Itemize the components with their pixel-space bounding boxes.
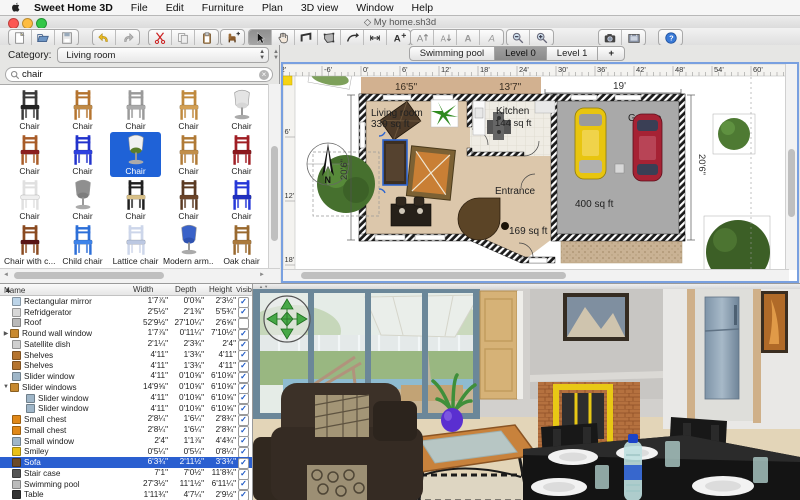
catalog-item-label: Oak chair — [216, 256, 267, 266]
svg-text:20'6": 20'6" — [339, 159, 350, 180]
furniture-depth: 11'1½" — [168, 479, 204, 490]
table-row-small-chest[interactable]: Small chest2'8¼"1'6¼"2'8¾"✓ — [0, 414, 252, 425]
svg-text:12': 12' — [441, 65, 451, 74]
category-label: Category: — [8, 50, 51, 61]
furniture-name: Slider windows — [22, 383, 77, 392]
furniture-width: 2'4" — [120, 436, 168, 447]
furniture-icon — [12, 458, 21, 467]
plan-hscrollbar[interactable] — [283, 269, 789, 281]
furniture-depth: 0'11¼" — [168, 328, 204, 339]
furniture-width: 4'11" — [120, 404, 168, 415]
catalog-item-chair[interactable]: Chair — [57, 177, 108, 222]
furniture-height: 6'10⅝" — [204, 393, 236, 404]
main-toolbar: AAAAA? — [0, 28, 800, 46]
table-row-small-chest[interactable]: Small chest2'8¼"1'6¼"2'8¾"✓ — [0, 425, 252, 436]
furniture-width: 27'3½" — [120, 479, 168, 490]
paste-icon — [200, 31, 214, 45]
add-text-icon: A — [392, 31, 406, 45]
catalog-item-label: Chair — [4, 211, 55, 221]
catalog-item-label: Chair — [163, 121, 214, 131]
column-name[interactable]: Name ▲ — [4, 285, 12, 294]
category-dropdown[interactable]: Living room ▲▼ — [57, 47, 269, 63]
new-document-button[interactable] — [9, 30, 32, 45]
furniture-width: 1'7⅞" — [120, 328, 168, 339]
table-header[interactable]: Name ▲ Width Depth Height Visible — [0, 284, 252, 296]
catalog-item-label: Chair — [110, 211, 161, 221]
table-row-satellite-dish[interactable]: Satellite dish2'1¼"2'3¾"2'4"✓ — [0, 339, 252, 350]
catalog-item-thumbnail — [4, 132, 55, 166]
catalog-item-chair[interactable]: Chair — [163, 87, 214, 132]
navigation-compass-icon[interactable] — [264, 296, 310, 342]
catalog-item-chair[interactable]: Chair — [57, 87, 108, 132]
catalog-item-child-chair[interactable]: Child chair — [57, 222, 108, 267]
italic-style-button[interactable]: A — [480, 30, 503, 45]
furniture-width: 4'11" — [120, 361, 168, 372]
room-garage-area: 400 sq ft — [575, 199, 614, 210]
furniture-depth: 1'1⅞" — [168, 436, 204, 447]
compass-north-label: N — [325, 175, 332, 185]
create-photo-button[interactable] — [599, 30, 622, 45]
furniture-name: Sofa — [24, 458, 41, 467]
catalog-item-thumbnail — [57, 132, 108, 166]
furniture-icon — [12, 415, 21, 424]
furniture-name: Slider window — [38, 404, 89, 413]
catalog-item-label: Chair — [163, 166, 214, 176]
catalog-hscrollbar[interactable]: ◄ ► — [0, 268, 280, 283]
menu-help[interactable]: Help — [403, 2, 443, 14]
catalog-item-label: Chair — [4, 121, 55, 131]
plan-view[interactable]: 16'5" 13'7" 19' — [281, 62, 799, 283]
column-width[interactable]: Width — [133, 285, 153, 294]
furniture-depth: 0'10⅝" — [168, 393, 204, 404]
furniture-name: Roof — [24, 318, 41, 327]
window-title-bar[interactable]: ◇ My home.sh3d — [0, 16, 800, 28]
create-dimensions-icon — [368, 31, 382, 45]
catalog-item-label: Child chair — [57, 256, 108, 266]
menu-sweet-home-3d[interactable]: Sweet Home 3D — [25, 2, 122, 14]
room-entrance-area: 169 sq ft — [509, 226, 548, 237]
furniture-icon — [10, 329, 19, 338]
table-row-smiley[interactable]: Smiley0'5¼"0'5¼"0'8¼"✓ — [0, 447, 252, 458]
catalog-item-chair[interactable]: Chair — [57, 132, 108, 177]
zoom-out-button[interactable] — [507, 30, 530, 45]
enlarge-text-button[interactable]: A — [411, 30, 434, 45]
table-row-slider-window[interactable]: Slider window4'11"0'10⅝"6'10⅝"✓ — [0, 371, 252, 382]
menu-3d-view[interactable]: 3D view — [292, 2, 347, 14]
copy-icon — [176, 31, 190, 45]
furniture-width: 1'11¾" — [120, 490, 168, 500]
plan-sofa-selected[interactable] — [379, 132, 407, 193]
furniture-name: Slider window — [24, 372, 75, 381]
create-video-icon — [627, 31, 641, 45]
furniture-icon — [12, 426, 21, 435]
catalog-item-chair-with-c[interactable]: Chair with c... — [4, 222, 55, 267]
svg-text:A: A — [441, 34, 447, 43]
add-furniture-icon — [226, 31, 240, 45]
svg-text:A: A — [487, 33, 494, 44]
catalog-item-chair[interactable]: Chair — [4, 177, 55, 222]
catalog-item-chair[interactable]: Chair — [216, 87, 267, 132]
svg-text:42': 42' — [636, 65, 646, 74]
furniture-height: 4'4¾" — [204, 436, 236, 447]
furniture-width: 2'1¼" — [120, 339, 168, 350]
catalog-item-thumbnail — [163, 87, 214, 121]
furniture-depth: 0'5¼" — [168, 447, 204, 458]
furniture-depth: 2'1⅜" — [168, 307, 204, 318]
furniture-width: 2'5½" — [120, 307, 168, 318]
bold-style-icon: A — [461, 31, 475, 45]
save-document-icon — [60, 31, 74, 45]
table-row-refridgerator[interactable]: Refridgerator2'5½"2'1⅜"5'5¾"✓ — [0, 307, 252, 318]
search-field[interactable]: × — [5, 67, 273, 82]
tab-level-0[interactable]: Level 0 — [494, 46, 547, 61]
furniture-width: 2'8¼" — [120, 425, 168, 436]
furniture-height: 2'6⅝" — [204, 318, 236, 329]
clear-search-icon[interactable]: × — [259, 70, 269, 80]
furniture-width: 52'9½" — [120, 318, 168, 329]
catalog-item-lattice-chair[interactable]: Lattice chair — [110, 222, 161, 267]
furniture-icon — [26, 394, 35, 403]
plan-vscrollbar[interactable] — [785, 64, 797, 270]
room-kitchen-area: 144 sq ft — [495, 118, 532, 129]
menu-bar: Sweet Home 3DFileEditFurniturePlan3D vie… — [0, 0, 800, 16]
furniture-icon — [12, 437, 21, 446]
catalog-item-chair[interactable]: Chair — [110, 87, 161, 132]
open-document-button[interactable] — [32, 30, 55, 45]
expand-right-icon[interactable]: ▶ — [2, 330, 10, 337]
apple-icon[interactable] — [10, 2, 21, 13]
furniture-depth: 0'10⅝" — [168, 404, 204, 415]
reduce-text-button[interactable]: A — [434, 30, 457, 45]
catalog-item-thumbnail — [163, 222, 214, 256]
zoom-out-icon — [511, 31, 525, 45]
catalog-item-thumbnail — [110, 177, 161, 211]
table-row-rectangular-mirror[interactable]: Rectangular mirror1'7⅞"0'0⅜"2'3½"✓ — [0, 296, 252, 307]
furniture-icon — [12, 361, 21, 370]
table-row-table[interactable]: Table1'11¾"4'7¼"2'9½"✓ — [0, 490, 252, 500]
svg-text:-12': -12' — [283, 65, 287, 74]
tab-level-1[interactable]: Level 1 — [546, 46, 599, 61]
table-row-round-wall-window[interactable]: ▶Round wall window1'7⅞"0'11¼"7'10½"✓ — [0, 328, 252, 339]
room-living-area: 339 sq ft — [371, 119, 410, 130]
catalog-item-chair[interactable]: Chair — [216, 132, 267, 177]
about-help-icon: ? — [664, 31, 678, 45]
table-row-small-window[interactable]: Small window2'4"1'1⅞"4'4¾"✓ — [0, 436, 252, 447]
catalog-item-thumbnail — [163, 177, 214, 211]
create-dimensions-button[interactable] — [364, 30, 387, 45]
search-icon — [10, 70, 20, 80]
furniture-icon — [12, 372, 21, 381]
dim-top1: 16'5" — [395, 82, 418, 93]
catalog-item-thumbnail — [57, 87, 108, 121]
wall-picture — [563, 293, 629, 341]
furniture-width: 6'3¾" — [120, 457, 168, 468]
menu-edit[interactable]: Edit — [157, 2, 193, 14]
save-document-button[interactable] — [55, 30, 78, 45]
view3d-canvas[interactable] — [253, 289, 800, 500]
furniture-name: Slider window — [38, 394, 89, 403]
add-text-button[interactable]: A — [387, 30, 410, 45]
catalog-item-oak-chair[interactable]: Oak chair — [216, 222, 267, 267]
furniture-name: Smiley — [24, 447, 49, 456]
column-depth[interactable]: Depth — [175, 285, 196, 294]
tree-right-small[interactable] — [713, 114, 755, 154]
furniture-depth: 2'11½" — [168, 457, 204, 468]
cut-button[interactable] — [149, 30, 172, 45]
select-icon — [253, 31, 267, 45]
furniture-icon — [12, 469, 21, 478]
tab-swimming-pool[interactable]: Swimming pool — [409, 46, 495, 61]
furniture-icon — [26, 404, 35, 413]
furniture-depth: 1'6¼" — [168, 425, 204, 436]
catalog-item-label: Chair — [57, 121, 108, 131]
furniture-height: 11'8¾" — [204, 468, 236, 479]
pan-button[interactable] — [272, 30, 295, 45]
furniture-name: Rectangular mirror — [24, 297, 92, 306]
catalog-item-modern-arm[interactable]: Modern arm... — [163, 222, 214, 267]
catalog-item-thumbnail — [4, 177, 55, 211]
furniture-height: 2'8¾" — [204, 425, 236, 436]
redo-icon — [121, 31, 135, 45]
catalog-item-chair[interactable]: Chair — [4, 132, 55, 177]
furniture-height: 6'10⅝" — [204, 404, 236, 415]
furniture-icon — [12, 340, 21, 349]
furniture-icon — [10, 383, 19, 392]
furniture-list-panel: Name ▲ Width Depth Height Visible Rectan… — [0, 283, 253, 500]
svg-text:24': 24' — [519, 65, 529, 74]
expand-down-icon[interactable]: ▼ — [2, 384, 10, 390]
furniture-width: 14'9⅝" — [120, 382, 168, 393]
furniture-depth: 0'10⅝" — [168, 371, 204, 382]
furniture-height: 2'3½" — [204, 296, 236, 307]
furniture-height: 2'4" — [204, 339, 236, 350]
svg-text:A: A — [417, 33, 424, 44]
add-furniture-button[interactable] — [221, 30, 244, 45]
column-height[interactable]: Height — [209, 285, 232, 294]
catalog-item-thumbnail — [4, 222, 55, 256]
catalog-item-label: Modern arm... — [163, 256, 214, 266]
furniture-icon — [12, 318, 21, 327]
catalog-item-label: Chair — [57, 166, 108, 176]
wood-door — [480, 291, 523, 399]
undo-icon — [97, 31, 111, 45]
italic-style-icon: A — [485, 31, 499, 45]
furniture-name: Shelves — [24, 351, 53, 360]
catalog-item-label: Chair — [216, 166, 267, 176]
create-walls-icon — [299, 31, 313, 45]
svg-text:60': 60' — [753, 65, 763, 74]
redo-button[interactable] — [116, 30, 139, 45]
furniture-height: 0'8¼" — [204, 447, 236, 458]
furniture-height: 6'10⅝" — [204, 371, 236, 382]
yellow-car[interactable] — [575, 108, 606, 179]
window-title: ◇ My home.sh3d — [0, 17, 800, 28]
catalog-item-chair[interactable]: Chair — [163, 132, 214, 177]
catalog-item-thumbnail — [216, 87, 267, 121]
catalog-item-label: Chair with c... — [4, 256, 55, 266]
furniture-name: Small chest — [24, 415, 66, 424]
furniture-height: 6'10⅝" — [204, 382, 236, 393]
catalog-item-thumbnail — [216, 177, 267, 211]
furniture-name: Small window — [24, 437, 74, 446]
svg-text:54': 54' — [714, 65, 724, 74]
catalog-item-thumbnail — [110, 222, 161, 256]
panel-collapse-icon[interactable]: ▲▼ — [273, 49, 279, 61]
catalog-item-label: Chair — [57, 211, 108, 221]
svg-text:20'6": 20'6" — [696, 154, 707, 175]
furniture-depth: 1'6¼" — [168, 414, 204, 425]
svg-text:A: A — [393, 33, 400, 44]
furniture-icon — [12, 480, 21, 489]
room-living-label: Living room — [371, 108, 423, 119]
catalog-item-thumbnail — [110, 132, 161, 166]
create-rooms-button[interactable] — [318, 30, 341, 45]
catalog-item-label: Chair — [216, 211, 267, 221]
furniture-icon — [12, 308, 21, 317]
furniture-height: 4'11" — [204, 361, 236, 372]
catalog-item-label: Chair — [163, 211, 214, 221]
about-help-button[interactable]: ? — [659, 30, 682, 45]
vertical-ruler — [283, 76, 295, 270]
catalog-grid: ChairChairChairChairChairChairChairChair… — [0, 84, 280, 269]
zoom-in-icon — [535, 31, 549, 45]
create-video-button[interactable] — [622, 30, 645, 45]
svg-text:48': 48' — [675, 65, 685, 74]
furniture-depth: 2'3¾" — [168, 339, 204, 350]
water-bottle — [624, 434, 642, 500]
menu-furniture[interactable]: Furniture — [193, 2, 253, 14]
create-polylines-button[interactable] — [341, 30, 364, 45]
catalog-item-label: Chair — [110, 166, 161, 176]
dim-top2: 13'7" — [499, 82, 522, 93]
view3d-panel: ▲ ▼ — [253, 283, 800, 500]
category-value: Living room — [66, 50, 115, 61]
garage-marker — [615, 164, 624, 173]
furniture-depth: 27'10¼" — [168, 318, 204, 329]
plan-rug[interactable] — [406, 146, 455, 200]
create-photo-icon — [603, 31, 617, 45]
plan-canvas[interactable]: 16'5" 13'7" 19' — [283, 64, 787, 270]
catalog-item-thumbnail — [216, 132, 267, 166]
furniture-name: Table — [24, 490, 44, 499]
table-row-swimming-pool[interactable]: Swimming pool27'3½"11'1½"6'11¼"✓ — [0, 479, 252, 490]
red-car[interactable] — [633, 114, 662, 181]
furniture-height: 3'3¾" — [204, 457, 236, 468]
table-row-slider-window[interactable]: Slider window4'11"0'10⅝"6'10⅝"✓ — [0, 404, 252, 415]
furniture-icon — [12, 297, 21, 306]
horizontal-ruler — [283, 64, 787, 76]
new-document-icon — [13, 31, 27, 45]
orange-picture — [761, 291, 788, 353]
furniture-name: Shelves — [24, 361, 53, 370]
visible-checkbox[interactable]: ✓ — [238, 490, 249, 500]
refrigerator-3d — [705, 297, 739, 399]
table-rows: Rectangular mirror1'7⅞"0'0⅜"2'3½"✓Refrid… — [0, 296, 252, 500]
room-kitchen-label: Kitchen — [496, 106, 529, 117]
catalog-item-chair[interactable]: Chair — [216, 177, 267, 222]
ruler-origin-marker — [283, 76, 292, 85]
table-row-shelves[interactable]: Shelves4'11"1'3¾"4'11"✓ — [0, 361, 252, 372]
catalog-item-thumbnail — [4, 87, 55, 121]
catalog-item-label: Chair — [216, 121, 267, 131]
furniture-width: 7'1" — [120, 468, 168, 479]
cut-icon — [153, 31, 167, 45]
furniture-name: Satellite dish — [24, 340, 70, 349]
svg-text:12': 12' — [285, 191, 295, 200]
catalog-item-chair[interactable]: Chair — [110, 177, 161, 222]
plan-plant[interactable] — [431, 100, 458, 127]
svg-text:36': 36' — [597, 65, 607, 74]
reduce-text-icon: A — [438, 31, 452, 45]
furniture-width: 2'8¼" — [120, 414, 168, 425]
furniture-depth: 7'0½" — [168, 468, 204, 479]
table-row-stair-case[interactable]: Stair case7'1"7'0½"11'8¾"✓ — [0, 468, 252, 479]
svg-text:18': 18' — [285, 255, 295, 264]
menu-items: Sweet Home 3DFileEditFurniturePlan3D vie… — [25, 2, 442, 14]
svg-text:6': 6' — [285, 127, 291, 136]
furniture-name: Refridgerator — [24, 308, 72, 317]
svg-text:30': 30' — [558, 65, 568, 74]
sweet-home-3d-app: Sweet Home 3DFileEditFurniturePlan3D vie… — [0, 0, 800, 500]
menu-file[interactable]: File — [122, 2, 157, 14]
table-row-roof[interactable]: Roof52'9½"27'10¼"2'6⅝" — [0, 318, 252, 329]
furniture-width: 1'7⅞" — [120, 296, 168, 307]
menu-window[interactable]: Window — [347, 2, 402, 14]
pan-icon — [276, 31, 290, 45]
furniture-width: 4'11" — [120, 371, 168, 382]
table-row-sofa[interactable]: Sofa6'3¾"2'11½"3'3¾"✓ — [0, 457, 252, 468]
furniture-width: 4'11" — [120, 350, 168, 361]
furniture-name: Small chest — [24, 426, 66, 435]
undo-button[interactable] — [93, 30, 116, 45]
column-visible[interactable]: Visible — [236, 285, 253, 294]
table-row-slider-windows[interactable]: ▼Slider windows14'9⅝"0'10⅝"6'10⅝"✓ — [0, 382, 252, 393]
furniture-depth: 1'3¾" — [168, 350, 204, 361]
catalog-item-chair[interactable]: Chair — [110, 132, 161, 177]
catalog-item-chair[interactable]: Chair — [4, 87, 55, 132]
bold-style-button[interactable]: A — [457, 30, 480, 45]
catalog-item-thumbnail — [57, 177, 108, 211]
svg-text:?: ? — [669, 33, 674, 42]
open-document-icon — [36, 31, 50, 45]
paste-button[interactable] — [195, 30, 218, 45]
add-level-tab[interactable]: + — [597, 46, 625, 61]
catalog-item-thumbnail — [163, 132, 214, 166]
tree-bottom-right[interactable] — [704, 216, 770, 270]
dropdown-stepper-icon: ▲▼ — [259, 49, 265, 61]
search-input[interactable] — [20, 69, 259, 80]
patterned-cushion — [315, 395, 369, 437]
svg-text:18': 18' — [480, 65, 490, 74]
table-row-shelves[interactable]: Shelves4'11"1'3¾"4'11"✓ — [0, 350, 252, 361]
copy-button[interactable] — [172, 30, 195, 45]
furniture-height: 7'10½" — [204, 328, 236, 339]
furniture-height: 5'5¾" — [204, 307, 236, 318]
table-row-slider-window[interactable]: Slider window4'11"0'10⅝"6'10⅝"✓ — [0, 393, 252, 404]
level-tabs: Swimming poolLevel 0Level 1+ — [280, 45, 800, 62]
select-button[interactable] — [249, 30, 272, 45]
room-entrance-label: Entrance — [495, 186, 535, 197]
furniture-name: Stair case — [24, 469, 60, 478]
catalog-item-chair[interactable]: Chair — [163, 177, 214, 222]
create-walls-button[interactable] — [295, 30, 318, 45]
menu-plan[interactable]: Plan — [253, 2, 292, 14]
driveway[interactable] — [561, 241, 682, 263]
svg-text:6': 6' — [402, 65, 408, 74]
patterned-skirt — [307, 465, 367, 500]
zoom-in-button[interactable] — [530, 30, 553, 45]
furniture-icon — [12, 447, 21, 456]
